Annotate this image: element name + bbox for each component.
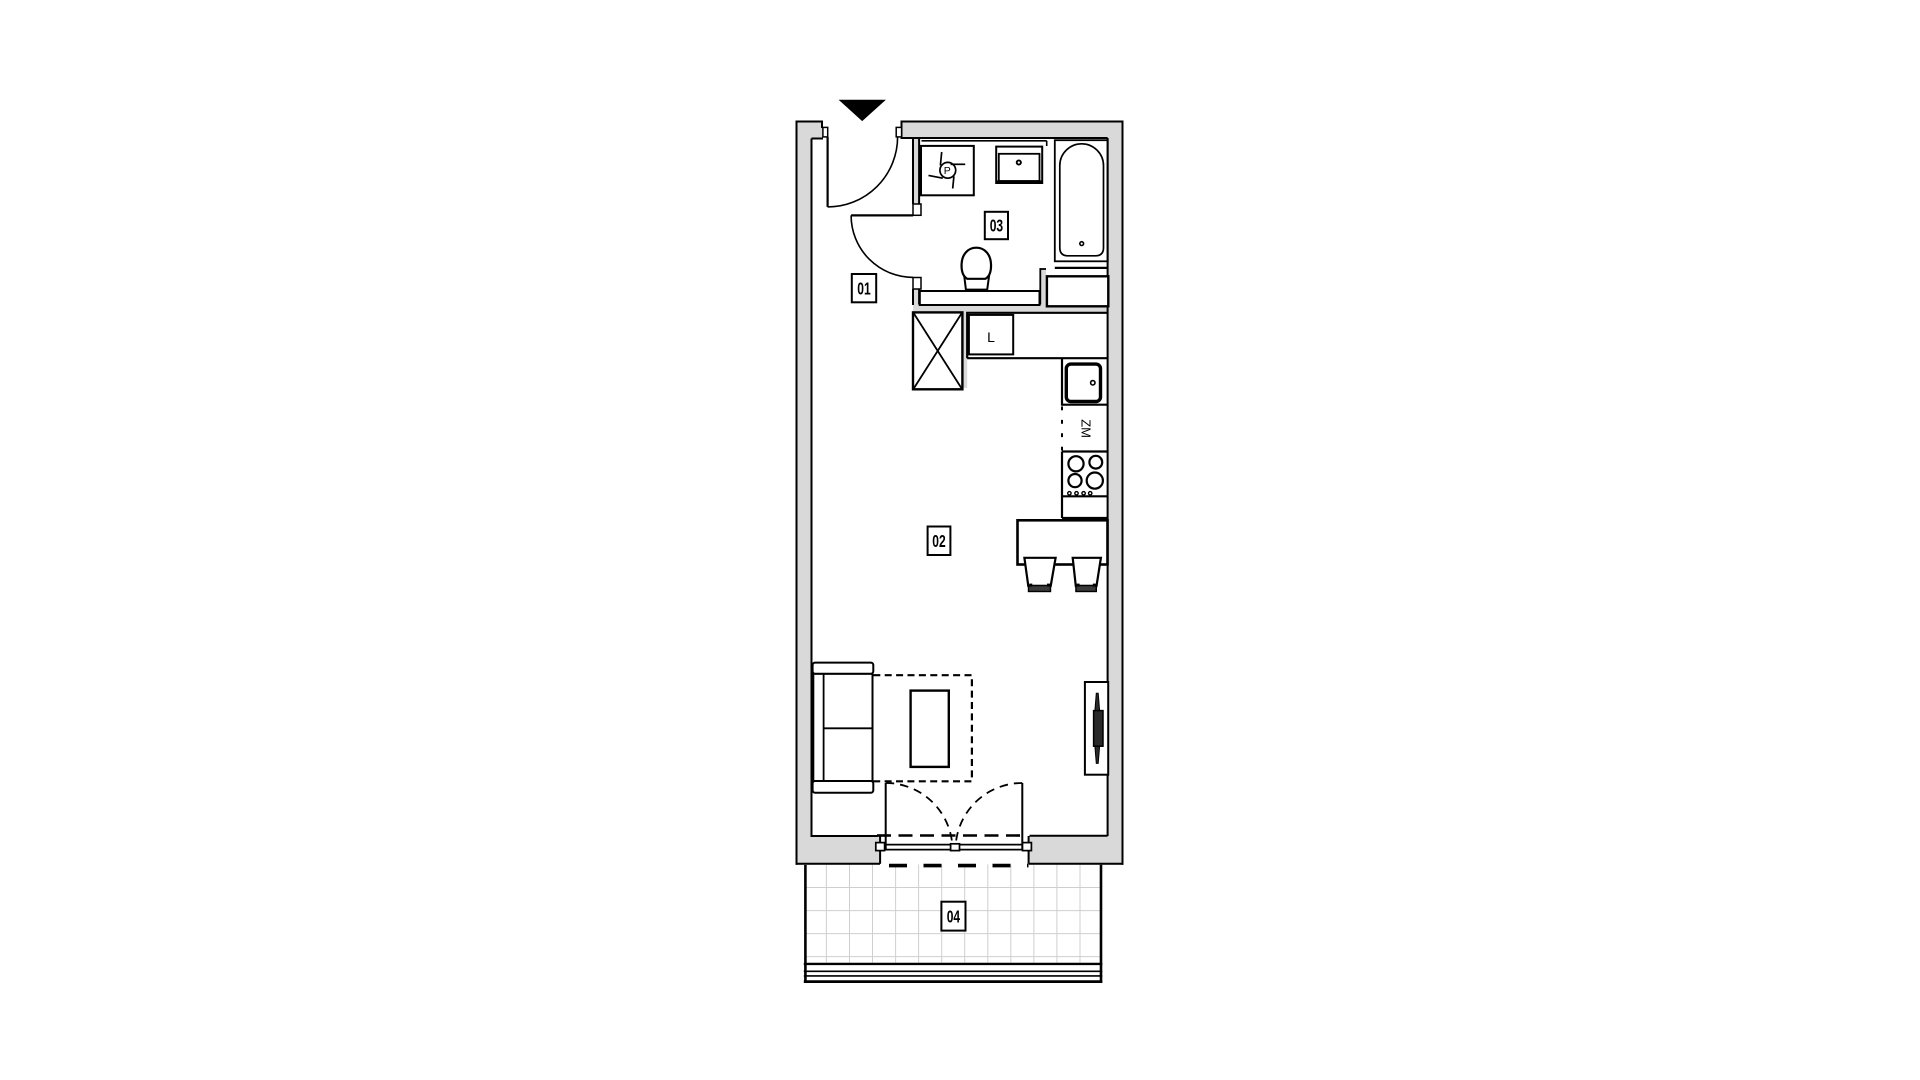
svg-text:ZM: ZM (1079, 419, 1094, 438)
svg-text:04: 04 (947, 906, 961, 926)
svg-text:L: L (987, 329, 995, 345)
svg-text:01: 01 (857, 278, 871, 298)
svg-text:02: 02 (932, 531, 946, 551)
svg-text:P: P (944, 165, 951, 177)
svg-text:03: 03 (990, 216, 1004, 236)
